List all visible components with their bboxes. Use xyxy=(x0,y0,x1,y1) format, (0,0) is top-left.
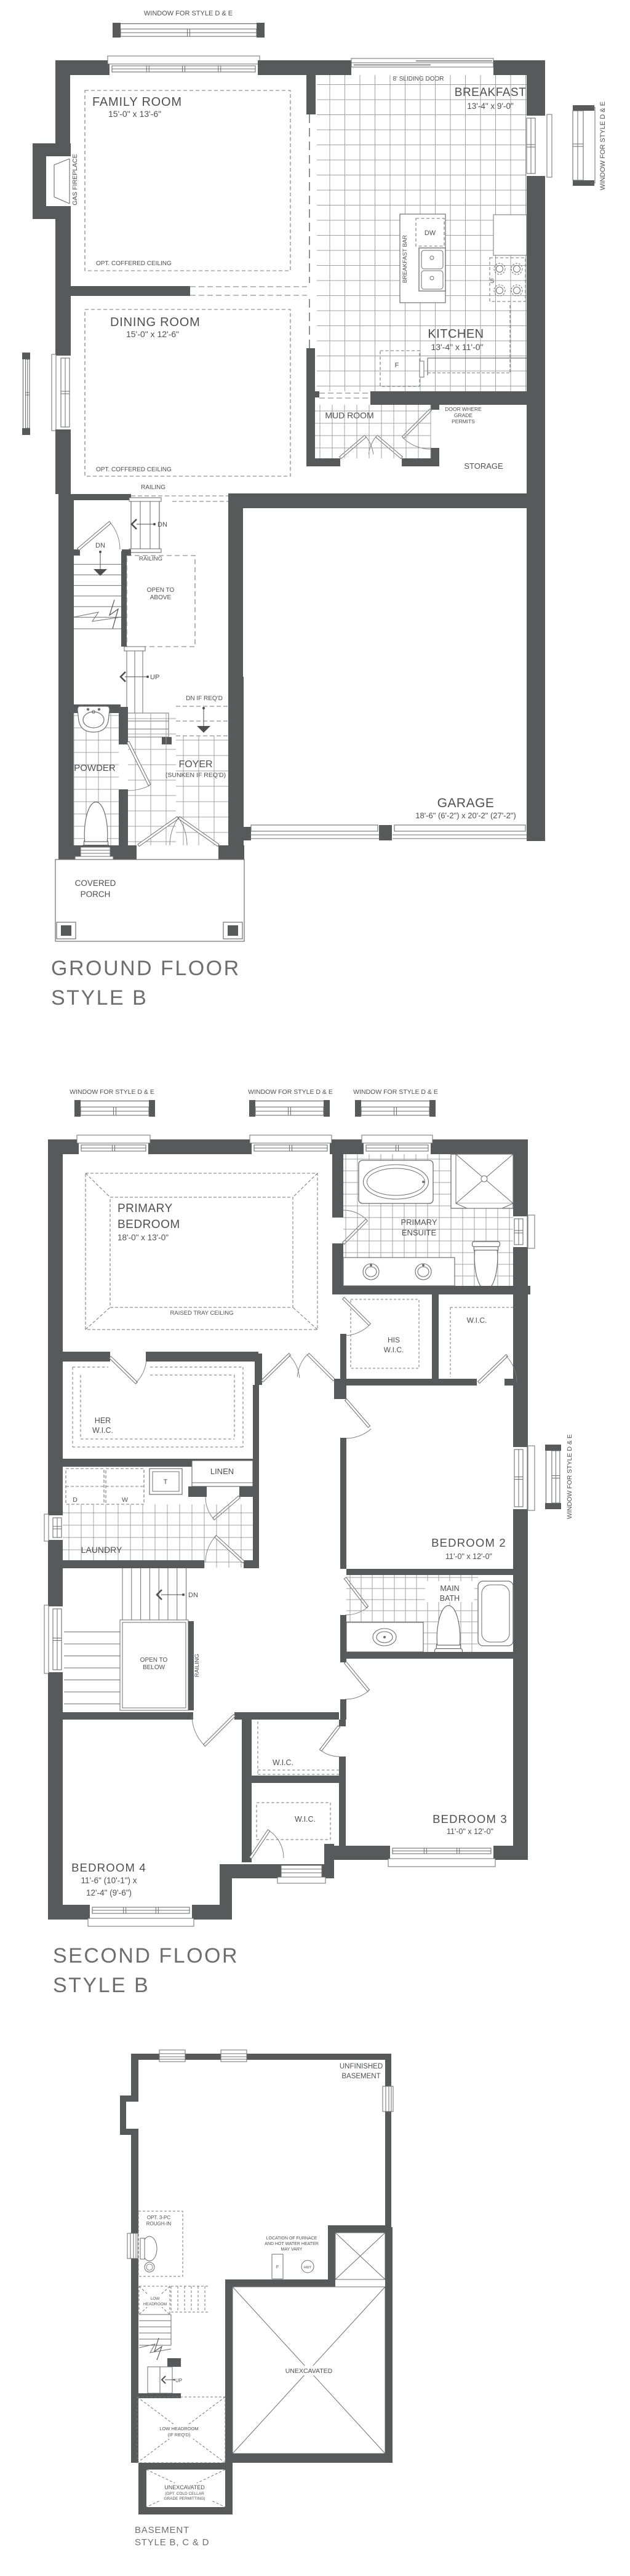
svg-text:RAILING: RAILING xyxy=(141,484,165,491)
svg-text:18'-0" x 13'-0": 18'-0" x 13'-0" xyxy=(118,1233,169,1242)
svg-text:PRIMARY: PRIMARY xyxy=(401,1218,437,1227)
svg-text:WINDOW FOR STYLE D & E: WINDOW FOR STYLE D & E xyxy=(70,1088,154,1096)
svg-text:15'-0" x 13'-6": 15'-0" x 13'-6" xyxy=(108,109,161,119)
svg-text:11'-0" x 12'-0": 11'-0" x 12'-0" xyxy=(445,1552,492,1561)
svg-text:W.I.C.: W.I.C. xyxy=(384,1346,404,1354)
svg-text:13'-4" x 9'-0": 13'-4" x 9'-0" xyxy=(467,102,514,111)
svg-text:GROUND FLOOR: GROUND FLOOR xyxy=(51,957,241,980)
svg-text:GRADE PERMITTING): GRADE PERMITTING) xyxy=(164,2497,205,2501)
svg-text:HER: HER xyxy=(95,1416,111,1425)
svg-text:W.I.C.: W.I.C. xyxy=(295,1815,316,1824)
svg-text:(SUNKEN IF REQ'D): (SUNKEN IF REQ'D) xyxy=(165,772,226,779)
svg-text:BATH: BATH xyxy=(440,1594,460,1603)
svg-text:PERMITS: PERMITS xyxy=(452,418,475,425)
svg-text:DW: DW xyxy=(425,229,436,237)
svg-text:F: F xyxy=(395,362,399,369)
svg-text:HIS: HIS xyxy=(388,1336,400,1344)
svg-text:13'-4" x 11'-0": 13'-4" x 11'-0" xyxy=(431,342,483,352)
svg-text:WINDOW FOR STYLE D & E: WINDOW FOR STYLE D & E xyxy=(248,1088,333,1096)
svg-text:WINDOW FOR STYLE D & E: WINDOW FOR STYLE D & E xyxy=(599,102,607,190)
svg-text:ROUGH-IN: ROUGH-IN xyxy=(146,2221,172,2227)
svg-text:W: W xyxy=(122,1496,128,1504)
svg-text:BREAKFAST: BREAKFAST xyxy=(455,86,526,99)
svg-text:DN: DN xyxy=(188,1592,198,1599)
svg-text:OPT. COFFERED CEILING: OPT. COFFERED CEILING xyxy=(96,466,172,473)
svg-text:OPT. 3-PC: OPT. 3-PC xyxy=(147,2215,170,2220)
svg-text:LAUNDRY: LAUNDRY xyxy=(81,1545,122,1555)
svg-text:POWDER: POWDER xyxy=(74,763,116,773)
svg-text:FAMILY ROOM: FAMILY ROOM xyxy=(92,95,182,109)
svg-text:DINING ROOM: DINING ROOM xyxy=(110,316,201,329)
svg-text:OPEN TO: OPEN TO xyxy=(147,587,175,594)
svg-text:HWT: HWT xyxy=(304,2266,312,2270)
svg-text:W.I.C.: W.I.C. xyxy=(467,1316,487,1325)
svg-text:DOOR WHERE: DOOR WHERE xyxy=(445,406,482,412)
svg-text:OPEN TO: OPEN TO xyxy=(140,1657,168,1664)
svg-text:W.I.C.: W.I.C. xyxy=(92,1426,113,1435)
svg-text:S: S xyxy=(490,278,495,285)
svg-text:(IF REQ'D): (IF REQ'D) xyxy=(168,2432,191,2438)
svg-text:LOCATION OF FURNACE: LOCATION OF FURNACE xyxy=(266,2236,317,2241)
svg-text:STORAGE: STORAGE xyxy=(464,461,503,471)
svg-text:STYLE B, C & D: STYLE B, C & D xyxy=(135,2537,209,2548)
svg-text:DN: DN xyxy=(95,542,105,549)
svg-text:DN: DN xyxy=(157,521,167,528)
svg-text:KITCHEN: KITCHEN xyxy=(428,327,484,341)
svg-text:ENSUITE: ENSUITE xyxy=(402,1228,437,1237)
svg-text:LOW: LOW xyxy=(151,2297,161,2301)
svg-text:UP: UP xyxy=(150,674,159,681)
svg-text:11'-0" x 12'-0": 11'-0" x 12'-0" xyxy=(447,1827,493,1836)
svg-text:12'-4" (9'-6"): 12'-4" (9'-6") xyxy=(86,1888,132,1897)
svg-text:GRADE: GRADE xyxy=(454,412,473,418)
svg-text:BASEMENT: BASEMENT xyxy=(135,2525,189,2535)
svg-text:UP: UP xyxy=(175,2378,182,2383)
svg-text:F: F xyxy=(276,2265,279,2270)
svg-text:LOW HEADROOM: LOW HEADROOM xyxy=(159,2426,198,2431)
svg-text:8' SLIDING DOOR: 8' SLIDING DOOR xyxy=(393,76,444,82)
svg-text:OPT. COFFERED CEILING: OPT. COFFERED CEILING xyxy=(96,260,172,267)
svg-text:STYLE B: STYLE B xyxy=(53,1974,150,1997)
svg-text:STYLE B: STYLE B xyxy=(51,986,148,1010)
svg-text:MAY VARY: MAY VARY xyxy=(281,2247,303,2252)
svg-text:(OPT. COLD CELLAR: (OPT. COLD CELLAR xyxy=(165,2492,204,2496)
svg-text:UNFINISHED: UNFINISHED xyxy=(340,2063,383,2070)
svg-text:D: D xyxy=(73,1496,78,1504)
svg-text:RAILING: RAILING xyxy=(139,556,162,562)
svg-text:PRIMARY: PRIMARY xyxy=(118,1202,173,1215)
svg-text:BELOW: BELOW xyxy=(143,1664,165,1671)
svg-text:COVERED: COVERED xyxy=(75,879,116,888)
svg-text:PORCH: PORCH xyxy=(81,890,111,899)
svg-text:LINEN: LINEN xyxy=(210,1467,234,1476)
svg-text:11'-6" (10'-1") x: 11'-6" (10'-1") x xyxy=(81,1876,137,1885)
svg-text:GARAGE: GARAGE xyxy=(437,796,495,810)
svg-text:WINDOW FOR STYLE D & E: WINDOW FOR STYLE D & E xyxy=(353,1088,438,1096)
svg-text:WINDOW FOR STYLE D & E: WINDOW FOR STYLE D & E xyxy=(144,10,233,17)
svg-text:GAS FIREPLACE: GAS FIREPLACE xyxy=(71,154,79,205)
svg-text:BEDROOM 3: BEDROOM 3 xyxy=(433,1812,508,1825)
svg-text:SECOND FLOOR: SECOND FLOOR xyxy=(53,1944,239,1968)
svg-text:BEDROOM 2: BEDROOM 2 xyxy=(431,1536,506,1549)
svg-text:RAILING: RAILING xyxy=(194,1654,201,1677)
svg-text:18'-6" (6'-2") x 20'-2" (27'-2: 18'-6" (6'-2") x 20'-2" (27'-2") xyxy=(415,811,516,820)
svg-text:BEDROOM: BEDROOM xyxy=(118,1218,180,1231)
svg-text:DN IF REQ'D: DN IF REQ'D xyxy=(186,695,223,702)
svg-text:BEDROOM 4: BEDROOM 4 xyxy=(71,1861,146,1874)
svg-text:BREAKFAST BAR: BREAKFAST BAR xyxy=(402,235,409,283)
svg-text:MAIN: MAIN xyxy=(440,1584,459,1593)
svg-text:UNEXCAVATED: UNEXCAVATED xyxy=(285,2367,333,2375)
svg-text:RAISED TRAY CEILING: RAISED TRAY CEILING xyxy=(170,1310,234,1317)
svg-text:W.I.C.: W.I.C. xyxy=(273,1758,293,1767)
svg-text:15'-0" x 12'-6": 15'-0" x 12'-6" xyxy=(126,329,179,339)
svg-text:T: T xyxy=(164,1478,168,1486)
svg-text:BASEMENT: BASEMENT xyxy=(341,2073,380,2080)
svg-text:UNEXCAVATED: UNEXCAVATED xyxy=(164,2484,205,2490)
svg-text:WINDOW FOR STYLE D & E: WINDOW FOR STYLE D & E xyxy=(566,1434,573,1519)
svg-text:MUD ROOM: MUD ROOM xyxy=(325,410,373,420)
svg-text:FOYER: FOYER xyxy=(178,759,212,770)
svg-text:AND HOT WATER HEATER: AND HOT WATER HEATER xyxy=(265,2242,319,2246)
svg-text:ABOVE: ABOVE xyxy=(150,594,172,601)
svg-text:HEADROOM: HEADROOM xyxy=(143,2302,167,2307)
